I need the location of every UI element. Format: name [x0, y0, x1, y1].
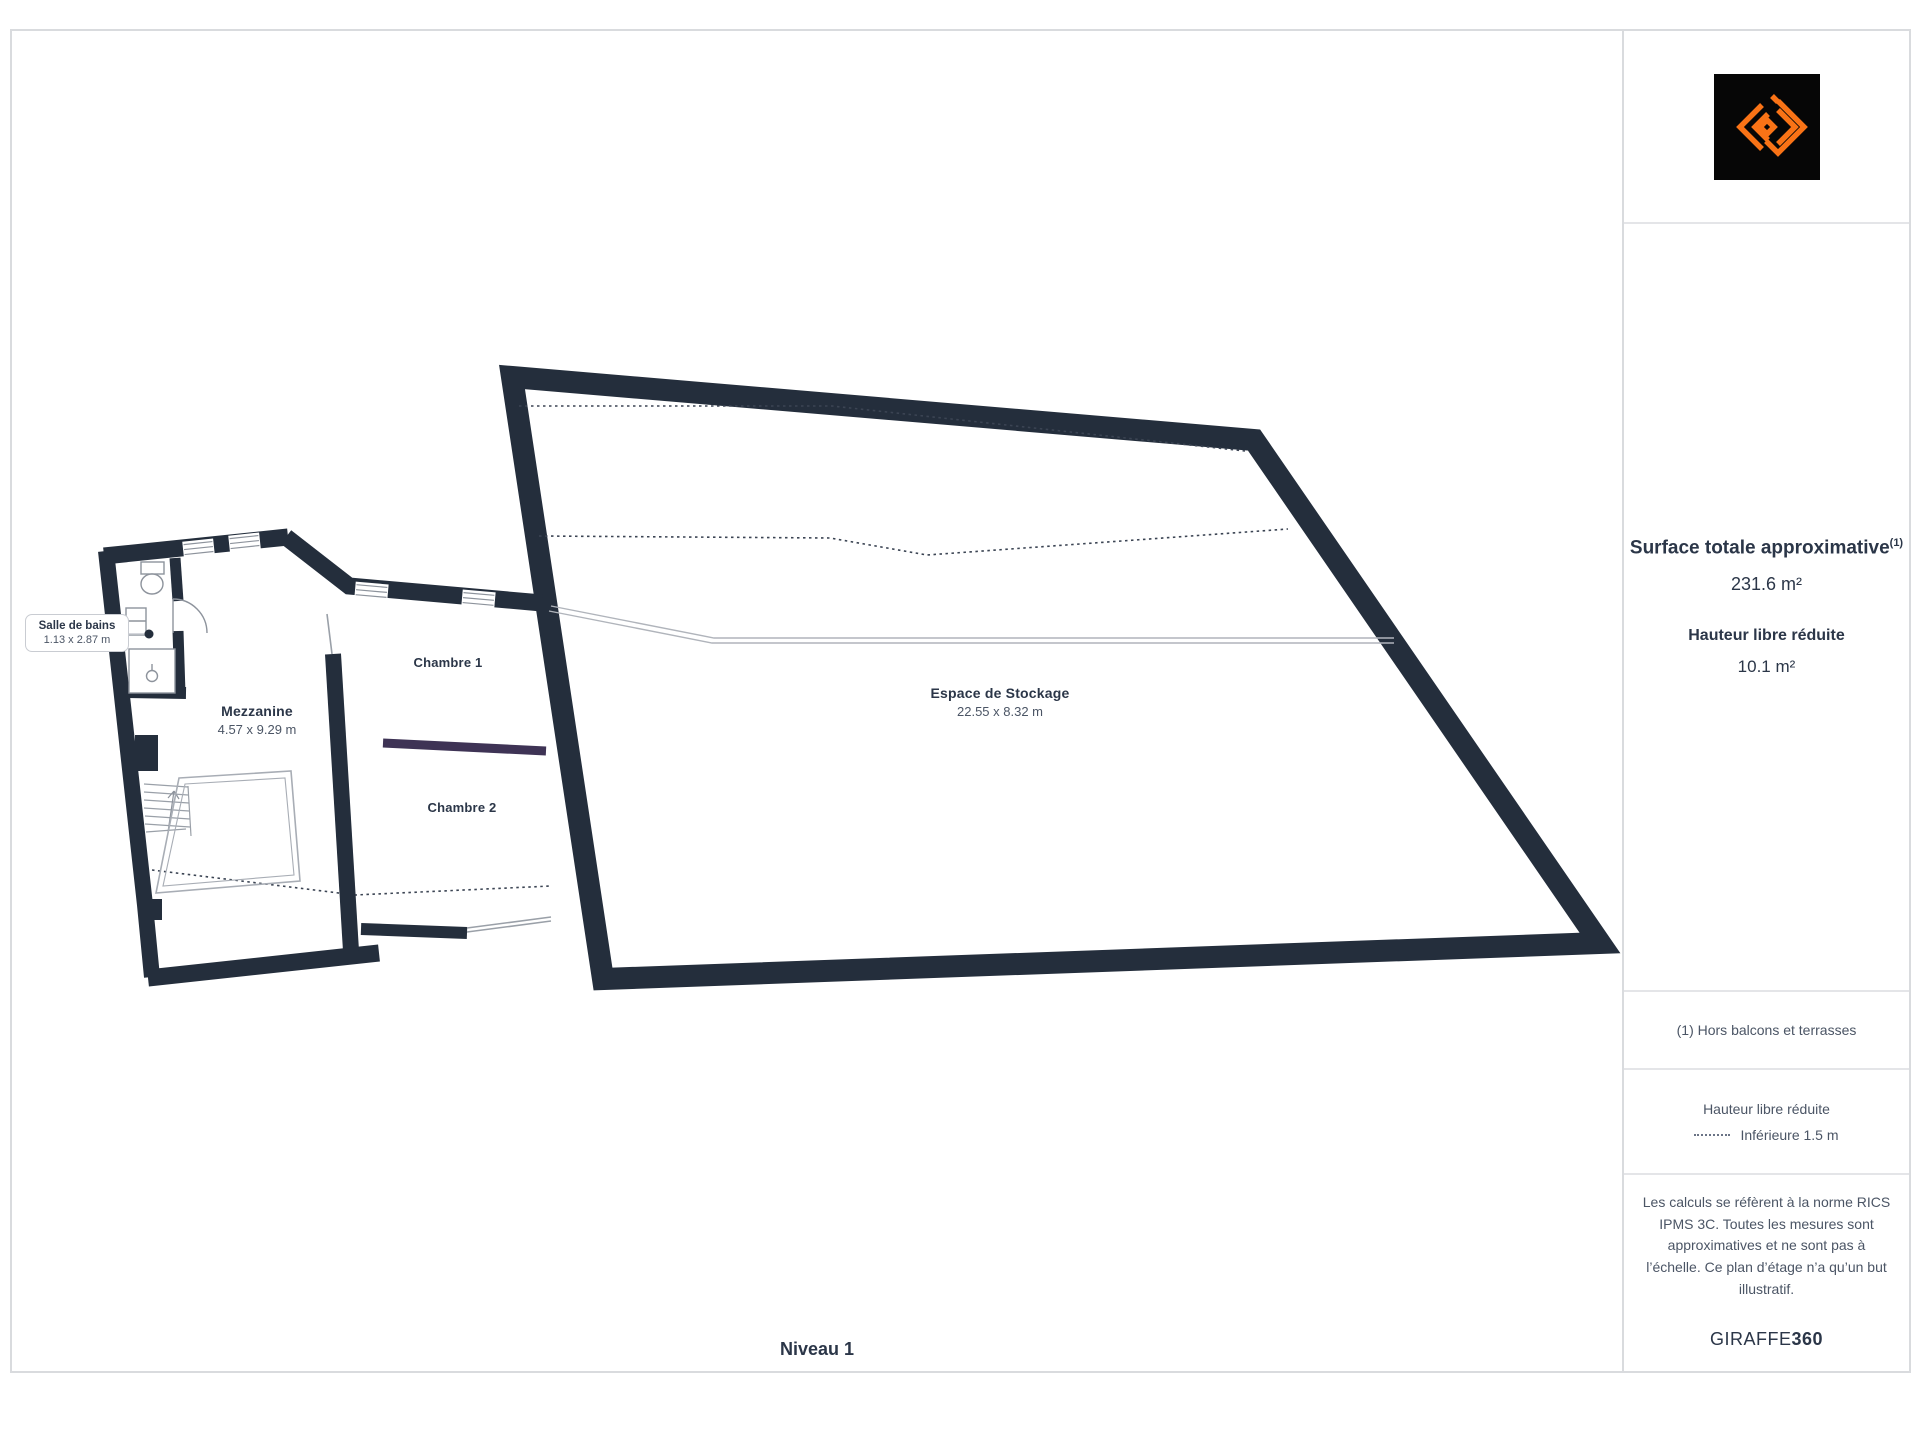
giraffe360-logo	[1714, 74, 1820, 180]
floor-level-label: Niveau 1	[717, 1339, 917, 1360]
surface-section: Surface totale approximative(1) 231.6 m²…	[1624, 224, 1909, 992]
wall-pier	[135, 735, 158, 771]
footnote-section: (1) Hors balcons et terrasses	[1624, 992, 1909, 1070]
wall-jog	[139, 899, 162, 920]
shower-icon	[129, 649, 175, 693]
door-swing	[173, 599, 207, 633]
info-sidebar: Surface totale approximative(1) 231.6 m²…	[1622, 31, 1909, 1371]
legend-section: Hauteur libre réduite Inférieure 1.5 m	[1624, 1070, 1909, 1175]
plan-area: Salle de bains 1.13 x 2.87 m Mezzanine 4…	[12, 31, 1622, 1371]
room-divider-low-wall	[383, 743, 546, 751]
surface-footnote-marker: (1)	[1890, 537, 1903, 549]
toilet-icon	[141, 562, 164, 594]
room-dimensions: 1.13 x 2.87 m	[34, 634, 120, 646]
thin-openings	[327, 614, 551, 932]
brand-normal: GIRAFFE	[1710, 1329, 1792, 1349]
pillar	[1438, 946, 1451, 959]
logo-section	[1624, 31, 1909, 224]
floorplan-page: Salle de bains 1.13 x 2.87 m Mezzanine 4…	[0, 0, 1920, 1440]
room-name: Salle de bains	[34, 620, 120, 632]
sink-icon	[126, 608, 146, 635]
disclaimer-section: Les calculs se réfèrent à la norme RICS …	[1624, 1175, 1909, 1371]
disclaimer-text: Les calculs se réfèrent à la norme RICS …	[1642, 1192, 1892, 1300]
reduced-height-value: 10.1 m²	[1738, 657, 1796, 677]
legend-item-label: Inférieure 1.5 m	[1740, 1127, 1838, 1143]
storage-walls	[512, 377, 1600, 979]
surface-title: Surface totale approximative(1)	[1630, 537, 1903, 559]
brand-bold: 360	[1791, 1329, 1823, 1349]
legend-title: Hauteur libre réduite	[1703, 1101, 1830, 1117]
floor-opening	[156, 771, 300, 893]
floorplan-frame: Salle de bains 1.13 x 2.87 m Mezzanine 4…	[10, 29, 1911, 1373]
footnote-text: (1) Hors balcons et terrasses	[1677, 1022, 1857, 1038]
reduced-height-title: Hauteur libre réduite	[1688, 627, 1844, 645]
room-label-salle-de-bains: Salle de bains 1.13 x 2.87 m	[25, 614, 129, 652]
stairs-icon	[144, 784, 191, 836]
brand-wordmark: GIRAFFE360	[1710, 1326, 1823, 1354]
surface-value: 231.6 m²	[1731, 574, 1802, 595]
surface-title-text: Surface totale approximative	[1630, 538, 1890, 559]
dotted-line-swatch	[1694, 1134, 1730, 1136]
